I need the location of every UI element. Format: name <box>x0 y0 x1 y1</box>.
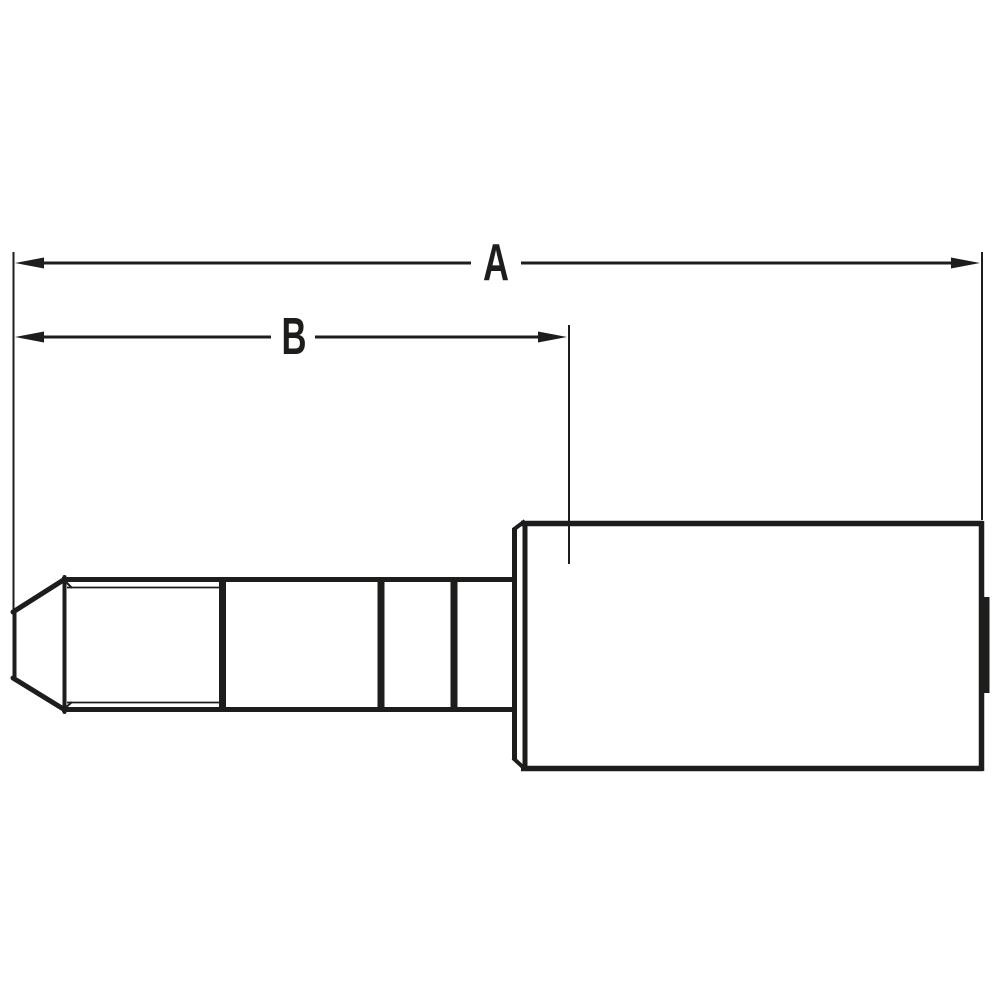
dimension-a-arrow-left <box>15 258 44 269</box>
dimension-a-arrow-right <box>951 258 980 269</box>
dimension-b: B <box>15 308 569 564</box>
nose-chamfer-bottom-line <box>13 678 65 710</box>
fitting-technical-drawing: A B <box>0 0 1000 1000</box>
drawing-canvas: A B <box>0 0 1000 1000</box>
dimension-b-arrow-left <box>15 332 44 343</box>
fitting-nose <box>13 577 65 712</box>
nose-chamfer-top-line <box>13 579 65 612</box>
dimension-b-label: B <box>282 308 307 366</box>
dimension-b-arrow-right <box>538 332 567 343</box>
dimension-a-label: A <box>483 234 509 292</box>
dimension-a: A <box>14 234 983 611</box>
socket-end-protrusion <box>982 597 990 693</box>
fitting-shank <box>62 577 513 712</box>
fitting-socket <box>513 521 990 771</box>
